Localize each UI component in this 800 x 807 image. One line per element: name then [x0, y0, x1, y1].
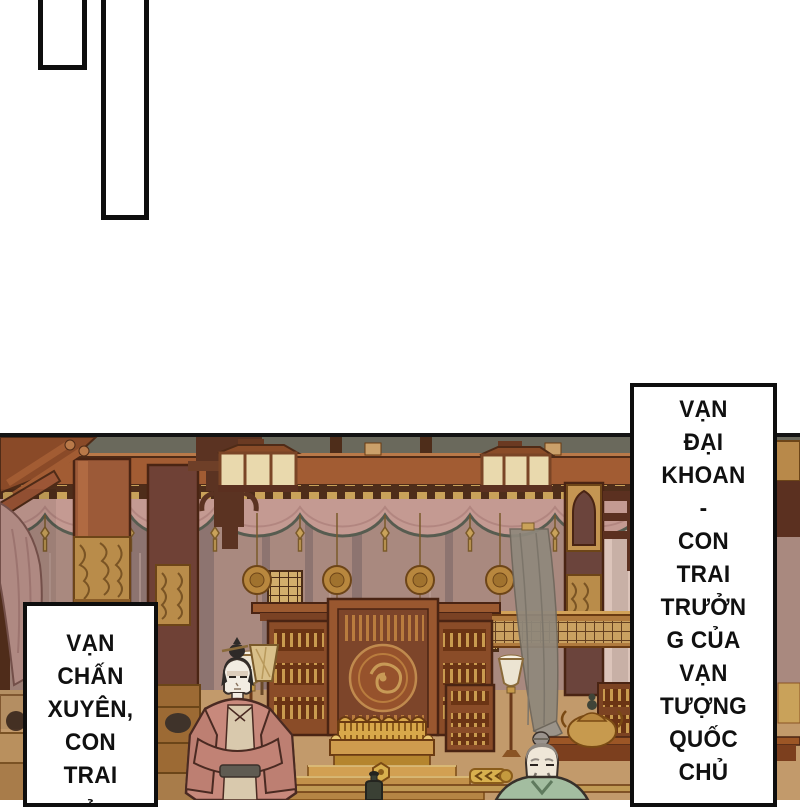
- empty-panel-small: [38, 0, 87, 70]
- comic-page: { "speech": { "left": { "lines": ["VẠN",…: [0, 0, 800, 800]
- caption-line: XUYÊN,: [31, 693, 150, 726]
- caption-line: KHOAN: [638, 459, 769, 492]
- caption-line: QUỐC: [638, 723, 769, 756]
- caption-line: VẠN: [638, 393, 769, 426]
- caption-line: TƯỢNG: [638, 690, 769, 723]
- caption-box-right: VẠN ĐẠI KHOAN - CON TRAI TRƯỞN G CỦA VẠN…: [630, 383, 777, 807]
- caption-line: TRAI: [31, 759, 150, 792]
- caption-line: CON: [31, 726, 150, 759]
- caption-line: TRƯỞN: [638, 591, 769, 624]
- caption-line: ĐẠI: [638, 426, 769, 459]
- throne: [330, 717, 434, 766]
- caption-line: -: [638, 492, 769, 525]
- caption-line: TRAI: [638, 558, 769, 591]
- shelf-cabinet: [446, 685, 494, 751]
- caption-line: CHỦ: [638, 756, 769, 789]
- caption-line: G CỦA: [638, 624, 769, 657]
- caption-line: CON: [638, 525, 769, 558]
- caption-box-left: VẠN CHẤN XUYÊN, CON TRAI CỦA: [23, 602, 158, 807]
- chevron-rail-ornament: [470, 769, 512, 783]
- caption-line: VẠN: [638, 657, 769, 690]
- empty-panel-tall: [101, 0, 149, 220]
- dragon-medallion: [350, 645, 416, 711]
- foreground-table-rail: [296, 785, 640, 792]
- caption-line: VẠN: [31, 627, 150, 660]
- caption-line: CHẤN: [31, 660, 150, 693]
- caption-line-clipped: CỦA: [31, 797, 150, 807]
